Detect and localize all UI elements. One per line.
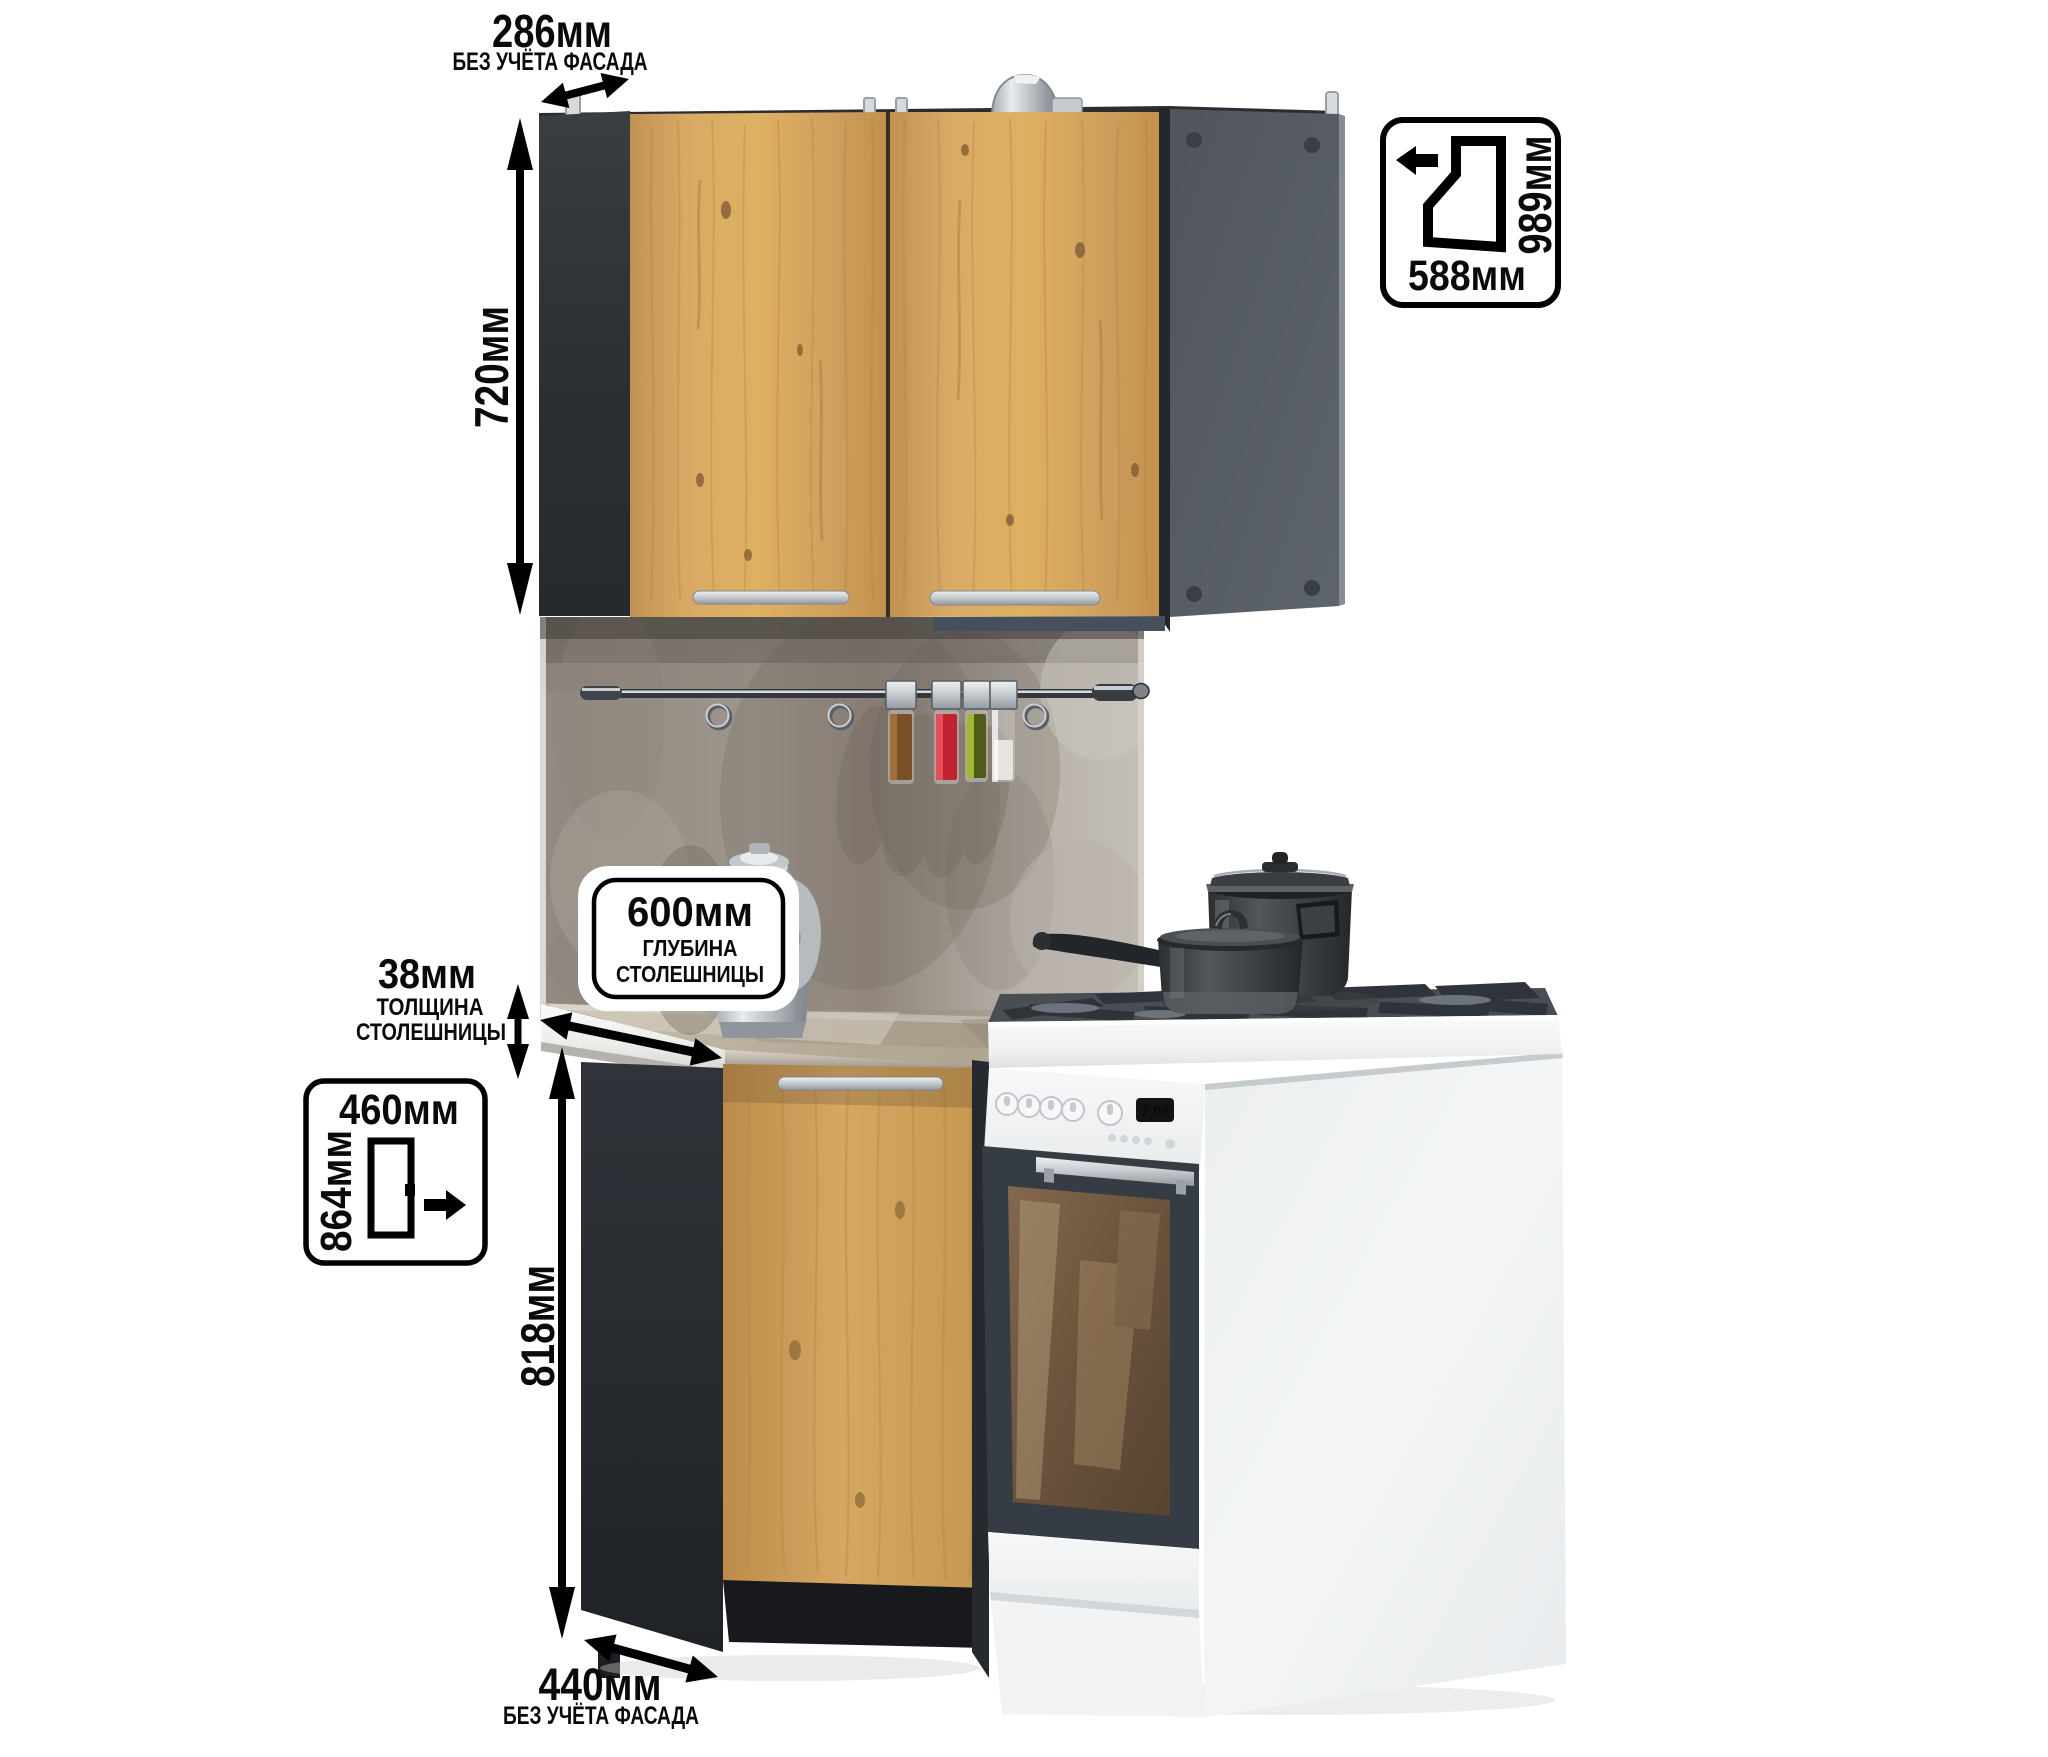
- svg-text:БЕЗ УЧЁТА ФАСАДА: БЕЗ УЧЁТА ФАСАДА: [453, 48, 648, 76]
- svg-text:989мм: 989мм: [1509, 136, 1561, 255]
- svg-text:38мм: 38мм: [378, 950, 476, 997]
- svg-text:720мм: 720мм: [465, 306, 518, 428]
- svg-text:588мм: 588мм: [1408, 252, 1526, 300]
- svg-text:460мм: 460мм: [339, 1086, 459, 1134]
- svg-text:ТОЛЩИНА: ТОЛЩИНА: [377, 994, 484, 1021]
- svg-text:СТОЛЕШНИЦЫ: СТОЛЕШНИЦЫ: [356, 1019, 506, 1046]
- svg-text:864мм: 864мм: [312, 1130, 361, 1252]
- svg-text:818мм: 818мм: [511, 1265, 564, 1387]
- svg-text:БЕЗ УЧЁТА ФАСАДА: БЕЗ УЧЁТА ФАСАДА: [503, 1702, 699, 1730]
- svg-text:7:08: 7:08: [1141, 1103, 1169, 1119]
- svg-text:ГЛУБИНА: ГЛУБИНА: [643, 935, 738, 961]
- svg-text:СТОЛЕШНИЦЫ: СТОЛЕШНИЦЫ: [616, 961, 764, 987]
- svg-text:600мм: 600мм: [627, 888, 753, 935]
